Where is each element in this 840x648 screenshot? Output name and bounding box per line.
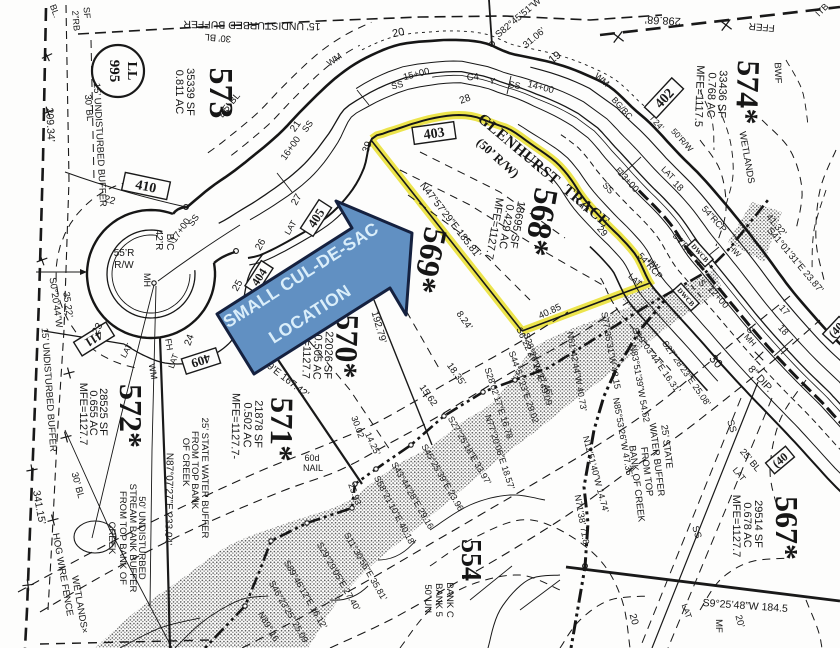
- svg-text:MFE=1127.7: MFE=1127.7: [730, 495, 742, 557]
- svg-text:MFE=1117.5: MFE=1117.5: [692, 65, 706, 127]
- svg-text:OF CREEK: OF CREEK: [180, 438, 191, 487]
- svg-text:42’R: 42’R: [153, 230, 164, 251]
- svg-text:15’ UNDISTURBED BUFFER: 15’ UNDISTURBED BUFFER: [183, 18, 321, 32]
- svg-text:554: 554: [455, 539, 486, 581]
- svg-text:0.811 AC: 0.811 AC: [173, 70, 185, 114]
- svg-text:60d: 60d: [304, 453, 319, 463]
- svg-text:MFE=1127.7-: MFE=1127.7-: [228, 393, 241, 460]
- svg-text:SS: SS: [508, 79, 522, 91]
- svg-text:MF: MF: [713, 619, 724, 633]
- svg-text:FH: FH: [163, 338, 175, 352]
- svg-text:MH: MH: [142, 273, 152, 287]
- svg-text:298.68’: 298.68’: [645, 13, 682, 27]
- svg-text:NAIL: NAIL: [303, 463, 323, 473]
- svg-text:C4: C4: [466, 72, 479, 84]
- svg-text:995: 995: [106, 60, 122, 83]
- svg-text:55’R: 55’R: [114, 248, 135, 259]
- svg-text:FROM TOP BANK OF: FROM TOP BANK OF: [117, 491, 128, 585]
- svg-text:403: 403: [423, 125, 446, 143]
- svg-text:574*: 574*: [729, 60, 767, 125]
- svg-text:20: 20: [391, 26, 405, 40]
- svg-text:FFER: FFER: [748, 20, 775, 33]
- svg-text:50’ UN.: 50’ UN.: [422, 584, 433, 615]
- svg-text:572*: 572*: [113, 384, 149, 448]
- svg-text:BANK C: BANK C: [444, 582, 455, 618]
- svg-text:30’ BL: 30’ BL: [204, 31, 231, 44]
- svg-text:567*: 567*: [769, 496, 805, 560]
- svg-text:BWF: BWF: [772, 62, 784, 84]
- svg-text:Y: Y: [489, 76, 496, 86]
- svg-text:571*: 571*: [263, 397, 300, 462]
- svg-text:0.502 AC: 0.502 AC: [241, 402, 254, 448]
- svg-text:N87°07’27”E 233.04’: N87°07’27”E 233.04’: [162, 453, 175, 546]
- svg-text:SF: SF: [82, 7, 93, 20]
- svg-text:R/W: R/W: [114, 260, 134, 271]
- svg-text:BANK 5: BANK 5: [433, 583, 444, 617]
- svg-text:LL: LL: [124, 62, 139, 81]
- svg-text:MFE=1127.7: MFE=1127.7: [77, 383, 89, 445]
- svg-text:209.34’: 209.34’: [43, 107, 57, 142]
- svg-text:2”RB: 2”RB: [70, 10, 82, 31]
